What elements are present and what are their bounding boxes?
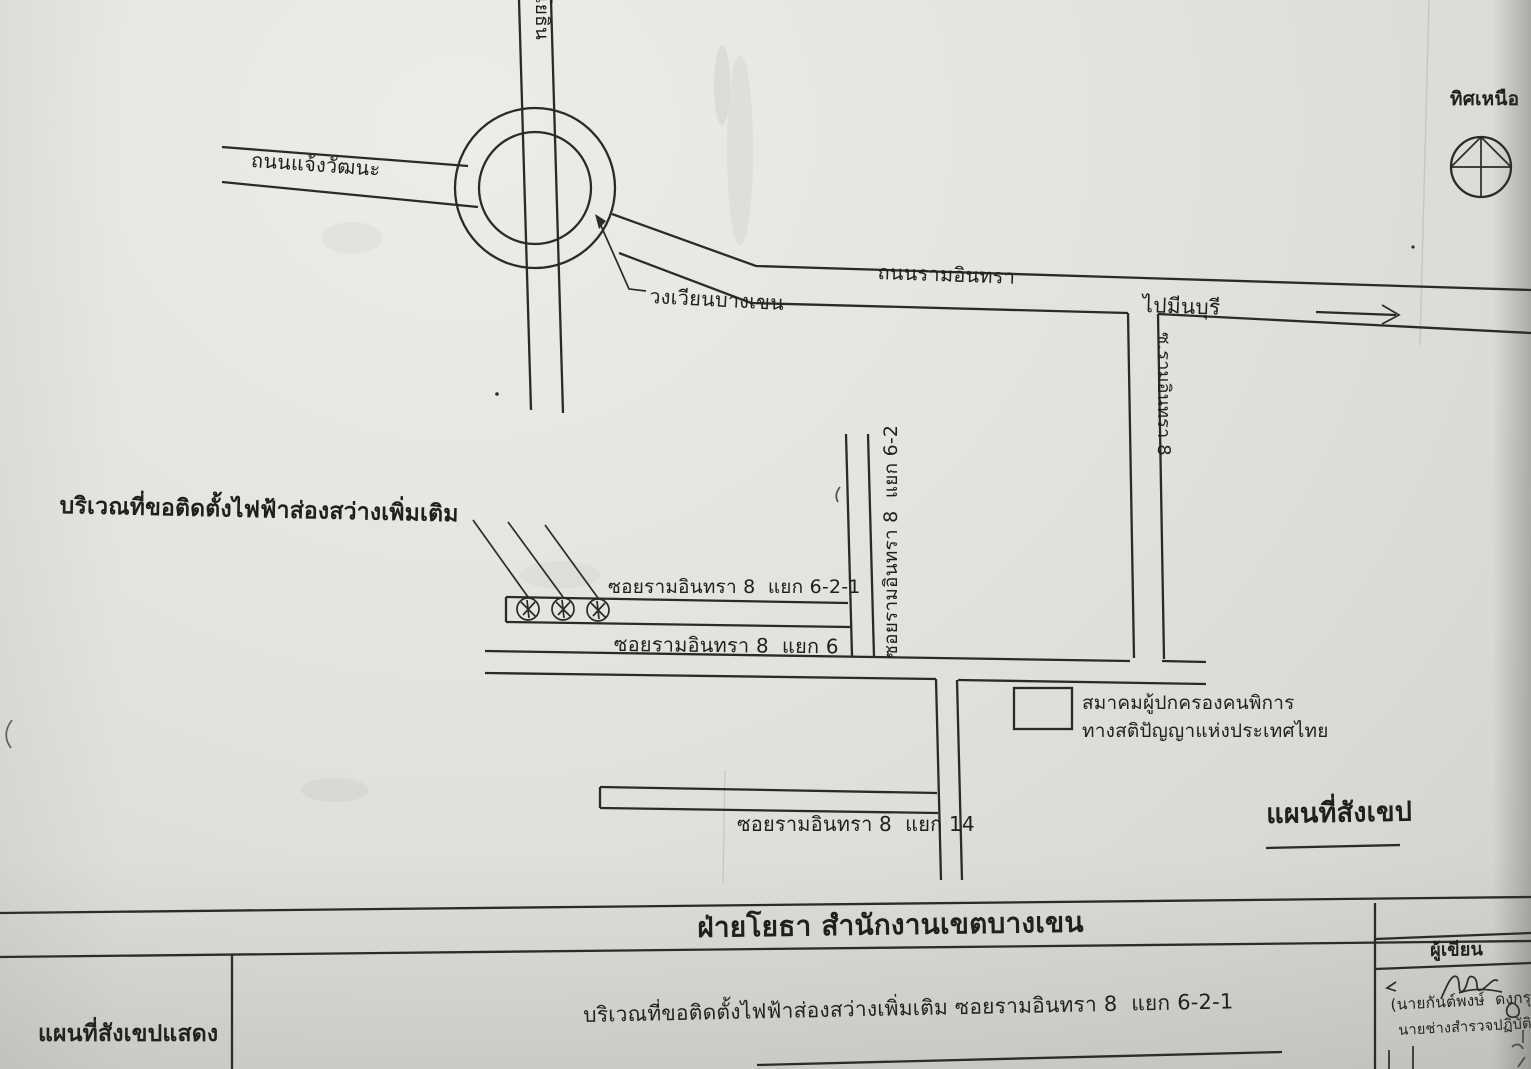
min-buri-arrow: [1316, 305, 1399, 324]
to-min-buri-label: ไปมีนบุรี: [1142, 292, 1221, 321]
compass-icon: [1451, 137, 1511, 197]
roundabout: [455, 108, 615, 268]
map-shows-label: แผนที่สังเขปแสดง: [38, 1020, 218, 1049]
soi-14-label: ซอยรามอินทรา 8 แยก 14: [737, 812, 975, 837]
soi-6-2-label: ซอยรามอินทรา 8 แยก 6-2: [880, 425, 904, 658]
page-edge-marks: [1512, 1030, 1525, 1067]
sketch-map-underline: [1266, 845, 1400, 848]
soi-6-2-1-label: ซอยรามอินทรา 8 แยก 6-2-1: [608, 576, 861, 600]
department-title: ฝ่ายโยธา สำนักงานเขตบางเขน: [697, 905, 1084, 945]
road-soi-6-2-1-lines: [506, 597, 850, 627]
road-phahonyothin-lines: [519, 0, 563, 413]
road-soi-14-lines: [600, 787, 938, 813]
road-connector-lines: [936, 679, 962, 880]
association-label-line1: สมาคมผู้ปกครองคนพิการ: [1082, 692, 1295, 716]
north-label: ทิศเหนือ: [1450, 88, 1519, 112]
road-phahonyothin-label: ถนนพหลโยธิน: [529, 0, 553, 40]
association-building: [1014, 688, 1072, 729]
scanned-sketch-map: ทิศเหนือ ถนนแจ้งวัฒนะ ถนนพหลโยธิน วงเวีย…: [0, 0, 1531, 1069]
road-soi-6-2-lines: [836, 434, 874, 657]
author-header: ผู้เขียน: [1430, 939, 1483, 962]
soi-ram-inthra-8-label: ซ.รามอินทรา 8: [1152, 332, 1175, 456]
association-label-line2: ทางสติปัญญาแห่งประเทศไทย: [1082, 720, 1329, 744]
road-ram-inthra-label: ถนนรามอินทรา: [877, 260, 1015, 290]
road-soi-6-lines: [485, 651, 1206, 684]
sketch-map-label: แผนที่สังเขป: [1266, 795, 1412, 831]
lamp-symbols: [517, 598, 609, 621]
soi-6-label: ซอยรามอินทรา 8 แยก 6: [614, 632, 839, 659]
scan-artifacts: [6, 0, 1429, 882]
